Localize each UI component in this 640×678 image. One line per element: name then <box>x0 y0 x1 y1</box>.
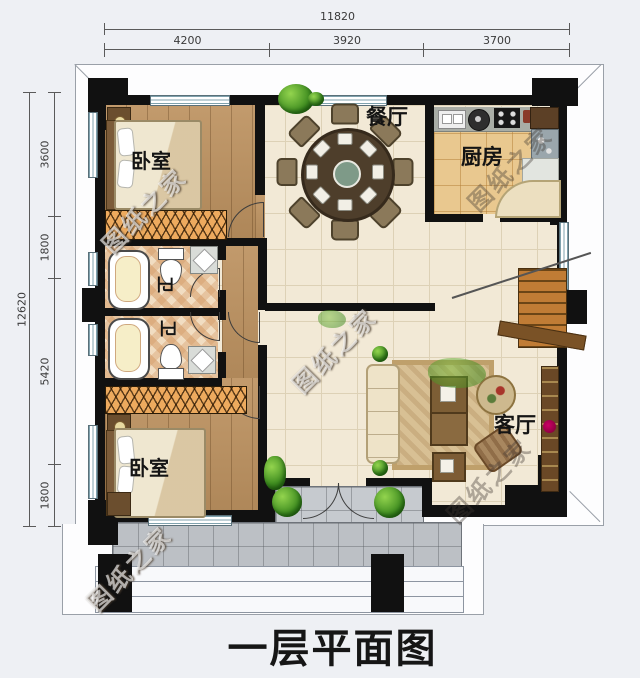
dim-left-seg3: 5420 <box>39 352 52 392</box>
bath-sink-top <box>190 246 218 274</box>
wall-vestibule-right <box>258 238 267 310</box>
plant <box>372 346 388 362</box>
plate <box>372 165 384 180</box>
stove <box>494 108 520 128</box>
dim-line <box>105 29 570 30</box>
page-title: 一层平面图 <box>160 616 505 674</box>
toilet-tank-bottom <box>158 368 184 380</box>
dim-line <box>105 49 570 50</box>
entry-step <box>95 596 464 613</box>
sofa <box>366 364 400 464</box>
dim-tick <box>423 43 424 57</box>
wall-bath-right <box>218 246 226 260</box>
dim-tick <box>23 526 36 527</box>
window-bedroom-top <box>150 95 230 106</box>
plant <box>372 460 388 476</box>
bathtub-basin <box>115 324 141 372</box>
dim-line <box>54 93 55 527</box>
label-dining: 餐厅 <box>366 101 408 131</box>
dim-tick <box>23 92 36 93</box>
dining-chair <box>277 158 298 186</box>
plate <box>338 133 353 145</box>
floor-plan-page: 11820 4200 3920 3700 12620 3600 1800 542… <box>0 0 640 678</box>
dim-tick <box>48 464 61 465</box>
side-table <box>432 452 466 482</box>
left-pillar <box>82 288 105 322</box>
dim-tick <box>269 43 270 57</box>
table-centerpiece <box>333 160 361 188</box>
window-bedroom-top-left <box>88 112 98 178</box>
sink-basin <box>192 248 216 272</box>
plant-entry-inside <box>264 456 286 490</box>
nightstand <box>107 492 131 516</box>
plant-dining-small <box>308 92 324 106</box>
dim-tick <box>48 216 61 217</box>
bathtub-basin <box>115 256 141 302</box>
dim-tick <box>48 526 61 527</box>
sink-drain <box>475 116 481 122</box>
dim-left-seg2: 1800 <box>39 228 52 268</box>
window-bedroom-bottom-left <box>88 425 98 499</box>
dim-left-seg4: 1800 <box>39 476 52 516</box>
entry-bush-right <box>374 487 405 518</box>
wall-bath-right <box>218 352 226 378</box>
label-bath-bottom: 卫 <box>157 320 182 337</box>
bathtub-bottom <box>108 318 150 380</box>
toilet-bowl-bottom <box>160 344 182 370</box>
dim-top-total: 11820 <box>105 10 570 23</box>
wardrobe-bottom <box>105 386 247 414</box>
plate <box>306 165 318 180</box>
dining-chair <box>331 104 359 125</box>
porch-pillar-right <box>371 554 404 612</box>
dim-tick <box>104 43 105 57</box>
sink-basin <box>190 348 214 372</box>
watermark-plant-scribble <box>428 358 486 388</box>
wall-bedroom-top-right <box>255 95 265 195</box>
dim-tick <box>48 278 61 279</box>
dining-chair <box>331 220 359 241</box>
dim-line <box>29 93 30 527</box>
dim-top-seg1: 4200 <box>105 34 270 47</box>
wall-kitchen-left <box>425 95 434 222</box>
stair-pillar <box>565 290 587 324</box>
bath-sink-bottom <box>188 346 216 374</box>
plate <box>338 199 353 211</box>
dim-left-seg1: 3600 <box>39 135 52 175</box>
table-decor <box>440 386 456 402</box>
wall-entry-stub-right <box>366 478 430 486</box>
coffee-table <box>430 412 468 446</box>
window-bath-bottom <box>88 324 98 356</box>
dining-chair <box>393 158 414 186</box>
dim-left-total: 12620 <box>16 288 29 332</box>
dim-tick <box>569 43 570 57</box>
dim-tick <box>48 92 61 93</box>
appliance-dial <box>442 114 452 124</box>
label-bedroom-bottom: 卧室 <box>129 452 169 481</box>
appliance-dial <box>453 114 463 124</box>
dim-top-seg2: 3920 <box>270 34 424 47</box>
table-decor <box>440 459 454 473</box>
entry-bush-left <box>272 487 302 517</box>
dim-top-seg3: 3700 <box>424 34 570 47</box>
label-bath-top: 卫 <box>154 276 179 293</box>
